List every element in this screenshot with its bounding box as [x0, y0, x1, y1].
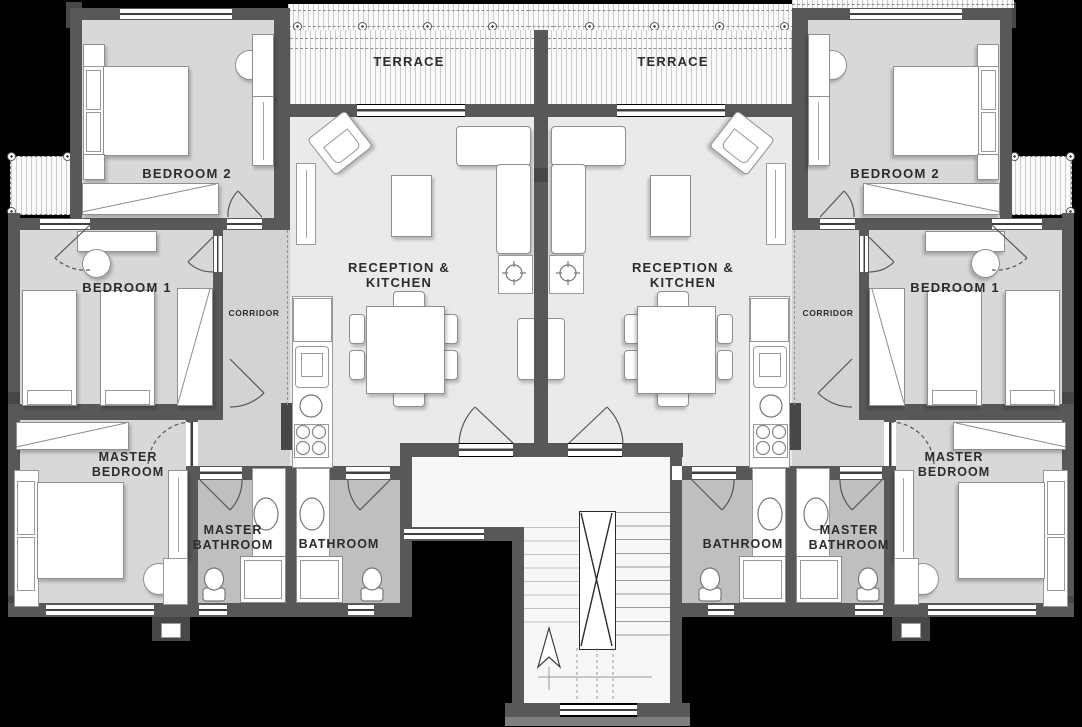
- party-wall-joint: [534, 168, 548, 182]
- wall: [512, 527, 524, 705]
- entry-door-panel: [568, 444, 622, 456]
- railing-line: [528, 10, 554, 11]
- wall: [670, 443, 682, 705]
- wall-notch: [672, 466, 682, 480]
- stair-treads-dashed: [524, 527, 580, 635]
- window: [560, 705, 637, 715]
- party-wall: [534, 30, 548, 443]
- stairwell-core: [0, 0, 1082, 727]
- window: [404, 529, 484, 539]
- wall: [505, 703, 560, 717]
- stair-treads: [614, 512, 670, 648]
- roof-strip: [792, 0, 1014, 8]
- wall: [513, 443, 568, 457]
- railing-strip-joint: [528, 4, 554, 30]
- wall: [637, 703, 690, 717]
- window-sill: [505, 717, 690, 726]
- railing-line: [792, 4, 1014, 5]
- railing-line: [528, 26, 554, 27]
- floor-plan: TERRACE BEDROOM 2 BEDROOM 1 CORRIDOR REC…: [0, 0, 1082, 727]
- entry-door-panel: [459, 444, 513, 456]
- wall: [400, 443, 412, 540]
- stair-stringer: [579, 511, 616, 650]
